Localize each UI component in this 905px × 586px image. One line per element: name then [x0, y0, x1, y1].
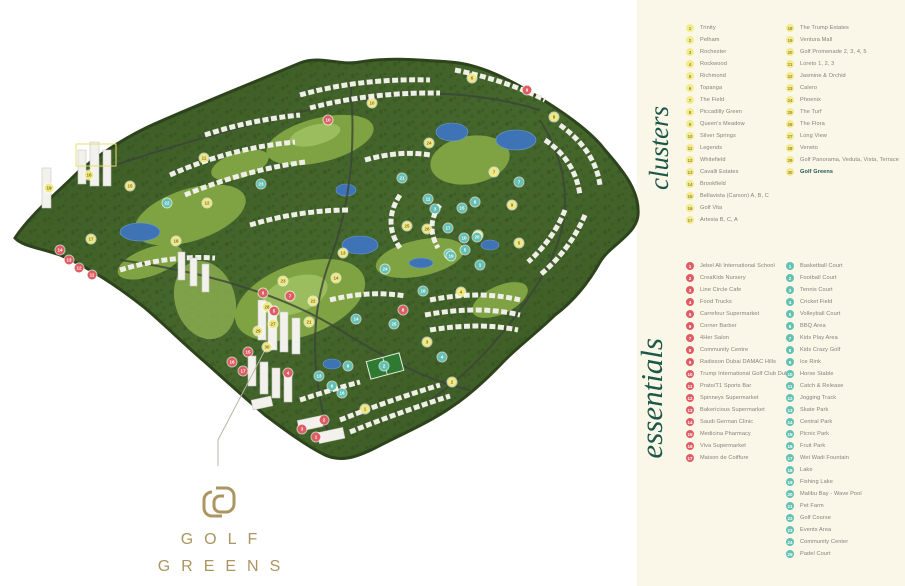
legend-item-label: Fishing Lake — [800, 479, 833, 485]
legend-item-number: 14 — [686, 180, 694, 188]
legend-item: 8Kids Crazy Golf — [786, 344, 905, 356]
legend-item-number: 3 — [686, 48, 694, 56]
legend-item-label: Golf Panorama, Veduta, Vista, Terrace — [800, 157, 899, 163]
legend-item-number: 27 — [786, 132, 794, 140]
legend-item-label: Calero — [800, 85, 817, 91]
legend-item-label: 4Her Salon — [700, 335, 729, 341]
legend-item-number: 30 — [786, 168, 794, 176]
legend-item-label: Long View — [800, 133, 827, 139]
legend-item: 18Lake — [786, 464, 905, 476]
legend-item: 17Wet Wadi Fountain — [786, 452, 905, 464]
legend-item-label: Trump International Golf Club Dubai — [700, 371, 793, 377]
brand-word-golf: GOLF — [140, 531, 298, 549]
legend-item-number: 24 — [786, 538, 794, 546]
legend-item-label: Corner Barber — [700, 323, 737, 329]
legend-item-label: Phoenix — [800, 97, 821, 103]
legend-item-number: 12 — [786, 394, 794, 402]
legend-item: 24Community Center — [786, 536, 905, 548]
legend-item: 29Golf Panorama, Veduta, Vista, Terrace — [786, 154, 905, 166]
legend-item-label: Pelham — [700, 37, 720, 43]
legend-item: 15Picnic Park — [786, 428, 905, 440]
legend-item-number: 25 — [786, 108, 794, 116]
legend-item-label: Viva Supermarket — [700, 443, 746, 449]
legend-item-label: Trinity — [700, 25, 716, 31]
legend-item-label: Central Park — [800, 419, 832, 425]
legend-item: 21Pet Farm — [786, 500, 905, 512]
masterplan-page: { "brand": { "line1": "GOLF", "line2": "… — [0, 0, 905, 586]
legend-item-label: Pet Farm — [800, 503, 824, 509]
legend-item: 16Golf Vita — [686, 202, 806, 214]
legend-item-label: Bellavista (Carson) A, B, C — [700, 193, 769, 199]
legend-item-number: 28 — [786, 144, 794, 152]
legend-item-label: Golf Greens — [800, 169, 833, 175]
legend-item-number: 15 — [786, 430, 794, 438]
legend-item-label: Spinneys Supermarket — [700, 395, 759, 401]
legend-item-number: 20 — [786, 490, 794, 498]
legend-item-number: 15 — [686, 192, 694, 200]
legend-item-label: Jasmine & Orchid — [800, 73, 846, 79]
legend-item-number: 6 — [686, 322, 694, 330]
legend-item-label: Community Centre — [700, 347, 748, 353]
legend-item-number: 25 — [786, 550, 794, 558]
legend-item: 24Phoenix — [786, 94, 905, 106]
legend-item: 15Bellavista (Carson) A, B, C — [686, 190, 806, 202]
legend-item: 26The Flora — [786, 118, 905, 130]
legend-item-label: Bakericious Supermarket — [700, 407, 765, 413]
legend-item-number: 7 — [786, 334, 794, 342]
legend-item: 3Tennis Court — [786, 284, 905, 296]
legend-item-label: Loreto 1, 2, 3 — [800, 61, 834, 67]
legend-item-label: Padel Court — [800, 551, 831, 557]
legend-item-number: 16 — [686, 442, 694, 450]
legend-item-label: Wet Wadi Fountain — [800, 455, 849, 461]
legend-item-number: 19 — [786, 36, 794, 44]
legend-item-label: Silver Springs — [700, 133, 736, 139]
legend-item: 22Jasmine & Orchid — [786, 70, 905, 82]
legend-item-number: 26 — [786, 120, 794, 128]
legend-item-label: Fruit Park — [800, 443, 825, 449]
legend-item-number: 9 — [786, 358, 794, 366]
legend-item-label: Tennis Court — [800, 287, 833, 293]
legend-item-number: 10 — [686, 132, 694, 140]
clusters-section-label: clusters — [644, 106, 675, 190]
legend-item-number: 10 — [686, 370, 694, 378]
legend-item-label: Prato/T1 Sports Bar — [700, 383, 751, 389]
legend-item-number: 23 — [786, 526, 794, 534]
legend-item: 23Events Area — [786, 524, 905, 536]
legend-item: 5Volleyball Court — [786, 308, 905, 320]
legend-item-number: 17 — [686, 216, 694, 224]
legend-item: 21Loreto 1, 2, 3 — [786, 58, 905, 70]
legend-item: 25The Turf — [786, 106, 905, 118]
legend-item-label: Kids Crazy Golf — [800, 347, 840, 353]
legend-item: 22Golf Course — [786, 512, 905, 524]
legend-item-label: Jogging Track — [800, 395, 836, 401]
legend-item-number: 19 — [786, 478, 794, 486]
legend-item-label: Rochester — [700, 49, 726, 55]
legend-item-number: 29 — [786, 156, 794, 164]
legend-item-label: Queen's Meadow — [700, 121, 745, 127]
legend-item-number: 2 — [686, 274, 694, 282]
legend-item-number: 9 — [686, 358, 694, 366]
legend-item-label: Saudi German Clinic — [700, 419, 753, 425]
legend-item-label: CreaKids Nursery — [700, 275, 746, 281]
golf-greens-monogram-icon — [196, 482, 242, 522]
legend-item: 19Ventura Mall — [786, 34, 905, 46]
legend-item-number: 1 — [686, 262, 694, 270]
legend-item: 30Golf Greens — [786, 166, 905, 178]
legend-item: 13Skate Park — [786, 404, 905, 416]
legend-item-number: 6 — [786, 322, 794, 330]
legend-item-number: 24 — [786, 96, 794, 104]
legend-item-label: Topanga — [700, 85, 722, 91]
legend-item-number: 17 — [686, 454, 694, 462]
legend-item-label: Volleyball Court — [800, 311, 840, 317]
legend-item-number: 12 — [686, 394, 694, 402]
legend-item: 2Football Court — [786, 272, 905, 284]
legend-item-number: 13 — [686, 406, 694, 414]
legend-item: 27Long View — [786, 130, 905, 142]
legend-item-label: Basketball Court — [800, 263, 843, 269]
legend-item-number: 20 — [786, 48, 794, 56]
legend-item: 16Fruit Park — [786, 440, 905, 452]
legend-item-number: 11 — [686, 382, 694, 390]
legend-item-number: 14 — [686, 418, 694, 426]
legend-item-label: The Turf — [800, 109, 822, 115]
legend-item-label: Horse Stable — [800, 371, 834, 377]
essentials-section-label: essentials — [634, 338, 670, 459]
legend-item: 25Padel Court — [786, 548, 905, 560]
essentials-amenities-list: 1Basketball Court2Football Court3Tennis … — [786, 260, 905, 560]
legend-item-label: The Trump Estates — [800, 25, 849, 31]
legend-item-label: BBQ Area — [800, 323, 826, 329]
legend-item: 17Artesia B, C, A — [686, 214, 806, 226]
legend-item: 23Calero — [786, 82, 905, 94]
legend-item: 7Kids Play Area — [786, 332, 905, 344]
legend-item-number: 16 — [686, 204, 694, 212]
legend-item-label: Veneto — [800, 145, 818, 151]
legend-item-label: Line Circle Cafe — [700, 287, 741, 293]
legend-item-number: 18 — [786, 466, 794, 474]
legend-item-label: Maison de Coiffure — [700, 455, 749, 461]
legend-item: 14Central Park — [786, 416, 905, 428]
legend-item-label: Golf Vita — [700, 205, 722, 211]
legend-item-number: 4 — [686, 298, 694, 306]
legend-item-label: Brookfield — [700, 181, 726, 187]
legend-item-label: The Flora — [800, 121, 825, 127]
legend-item-label: Medicina Pharmacy — [700, 431, 751, 437]
legend-item-label: Community Center — [800, 539, 848, 545]
legend-item-number: 13 — [786, 406, 794, 414]
legend-item-number: 17 — [786, 454, 794, 462]
legend-item-number: 9 — [686, 120, 694, 128]
legend-item: 19Fishing Lake — [786, 476, 905, 488]
legend-item-label: Malibu Bay - Wave Pool — [800, 491, 862, 497]
legend-item: 18The Trump Estates — [786, 22, 905, 34]
legend-item-label: Piccadilly Green — [700, 109, 742, 115]
clusters-list-col2: 18The Trump Estates19Ventura Mall20Golf … — [786, 22, 905, 178]
legend-item-number: 4 — [686, 60, 694, 68]
legend-item-label: Cricket Field — [800, 299, 832, 305]
legend-item-label: Golf Course — [800, 515, 831, 521]
legend-item-number: 8 — [686, 108, 694, 116]
legend-item-label: Whitefield — [700, 157, 726, 163]
legend-item-number: 1 — [786, 262, 794, 270]
legend-item-number: 7 — [686, 334, 694, 342]
legend-item-number: 16 — [786, 442, 794, 450]
legend-item-number: 1 — [686, 24, 694, 32]
legend-item-label: Radisson Dubai DAMAC Hills — [700, 359, 776, 365]
legend-item-number: 4 — [786, 298, 794, 306]
legend-item: 9Ice Rink — [786, 356, 905, 368]
legend-item: 1Basketball Court — [786, 260, 905, 272]
legend-item: 14Brookfield — [686, 178, 806, 190]
legend-item-number: 6 — [686, 84, 694, 92]
legend-item-number: 3 — [786, 286, 794, 294]
legend-item-number: 2 — [786, 274, 794, 282]
legend-item-number: 8 — [686, 346, 694, 354]
legend-item-label: Ventura Mall — [800, 37, 832, 43]
golf-greens-logo: GOLF GREENS — [140, 482, 298, 576]
legend-item: 10Horse Stable — [786, 368, 905, 380]
legend-item-number: 14 — [786, 418, 794, 426]
legend-item-number: 23 — [786, 84, 794, 92]
legend-item-label: Artesia B, C, A — [700, 217, 738, 223]
legend-item: 28Veneto — [786, 142, 905, 154]
legend-item-label: Events Area — [800, 527, 831, 533]
legend-item-label: Carrefour Supermarket — [700, 311, 759, 317]
legend-item-label: Kids Play Area — [800, 335, 838, 341]
legend-item-number: 21 — [786, 60, 794, 68]
legend-item: 6BBQ Area — [786, 320, 905, 332]
legend-item-number: 7 — [686, 96, 694, 104]
legend-item-number: 22 — [786, 72, 794, 80]
legend-item-number: 3 — [686, 286, 694, 294]
legend-item-label: Jebel Ali International School — [700, 263, 775, 269]
legend-item-label: Lake — [800, 467, 813, 473]
legend-item: 12Jogging Track — [786, 392, 905, 404]
legend-item-number: 12 — [686, 156, 694, 164]
legend-item-number: 5 — [786, 310, 794, 318]
legend-item: 20Malibu Bay - Wave Pool — [786, 488, 905, 500]
legend-item: 4Cricket Field — [786, 296, 905, 308]
legend-item-label: Ice Rink — [800, 359, 821, 365]
brand-word-greens: GREENS — [140, 558, 298, 576]
legend-item-label: Richmond — [700, 73, 726, 79]
legend-item-label: The Field — [700, 97, 724, 103]
legend-item: 20Golf Promenade 2, 3, 4, 5 — [786, 46, 905, 58]
legend-item: 11Catch & Release — [786, 380, 905, 392]
legend-item-number: 15 — [686, 430, 694, 438]
legend-item-number: 2 — [686, 36, 694, 44]
legend-item-label: Golf Promenade 2, 3, 4, 5 — [800, 49, 867, 55]
legend-item-number: 11 — [686, 144, 694, 152]
legend-item-number: 5 — [686, 310, 694, 318]
legend-item-label: Food Trucks — [700, 299, 732, 305]
legend-item-label: Skate Park — [800, 407, 828, 413]
legend-item-label: Cavalli Estates — [700, 169, 739, 175]
legend-item-number: 11 — [786, 382, 794, 390]
legend-item-label: Catch & Release — [800, 383, 843, 389]
legend-item-label: Football Court — [800, 275, 837, 281]
legend-item-number: 22 — [786, 514, 794, 522]
legend-item-number: 10 — [786, 370, 794, 378]
legend-item-number: 18 — [786, 24, 794, 32]
legend-item-label: Picnic Park — [800, 431, 829, 437]
legend-item-number: 8 — [786, 346, 794, 354]
legend-item-label: Rockwood — [700, 61, 727, 67]
legend-item-number: 5 — [686, 72, 694, 80]
legend-item-number: 13 — [686, 168, 694, 176]
legend-item-label: Legends — [700, 145, 722, 151]
legend-item-number: 21 — [786, 502, 794, 510]
